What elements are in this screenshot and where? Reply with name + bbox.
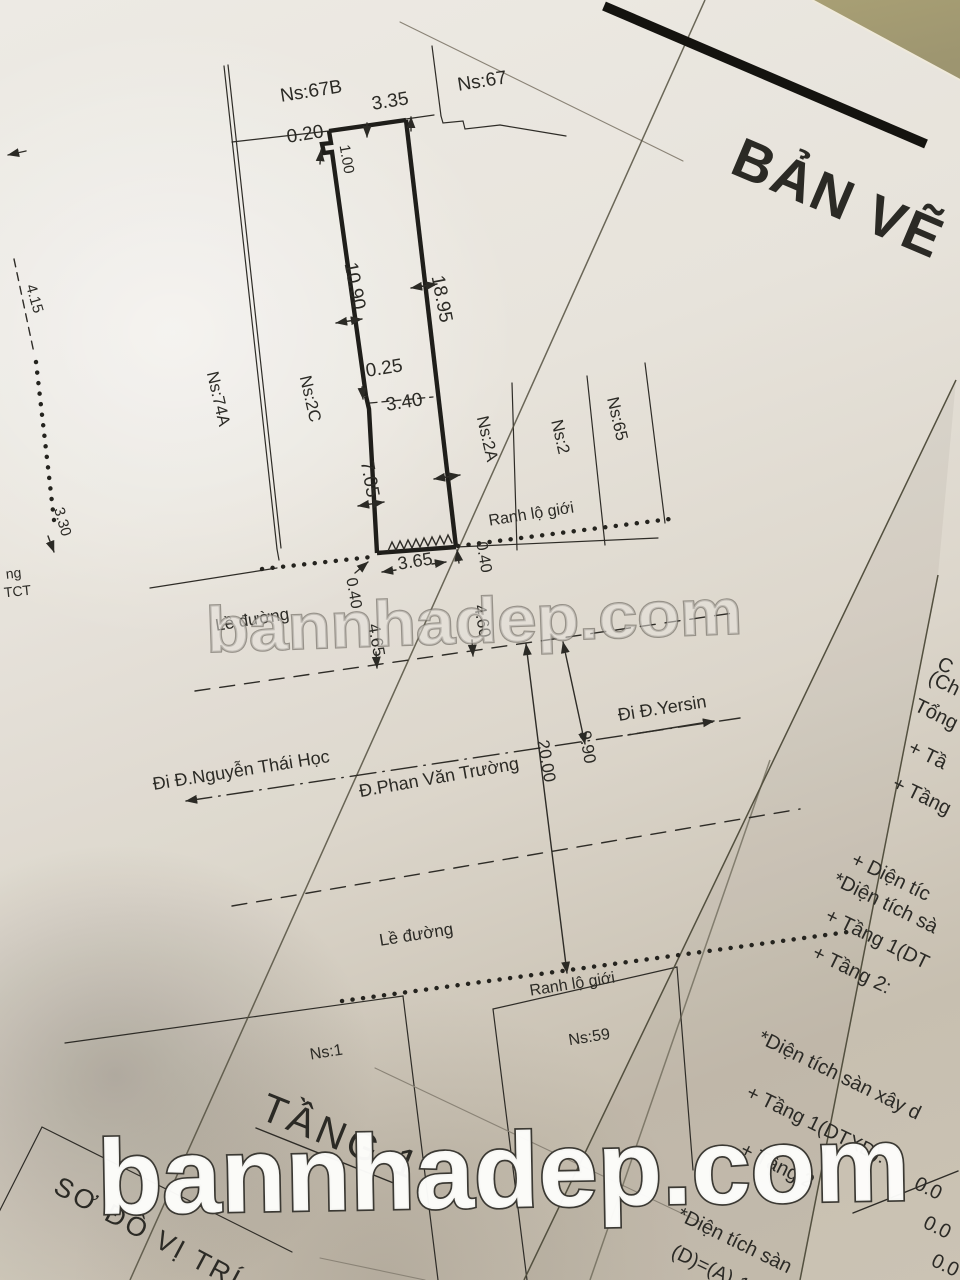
- panel-value: 0.0: [928, 1250, 960, 1280]
- parcel-ns65: Ns:65: [603, 395, 632, 443]
- street-yersin: Đi Đ.Yersin: [616, 691, 707, 725]
- edge-fragment-tct: TCT: [3, 582, 32, 601]
- sheet-title: BẢN VẼ: [723, 125, 953, 270]
- dim-half-width: 9.90: [575, 729, 599, 765]
- panel-line: + Tầng: [889, 773, 955, 820]
- ranh-lo-gioi-upper: Ranh lộ giới: [487, 499, 575, 529]
- photographed-drawing: BẢN VẼ Ns:67B Ns:67 Ns:74A Ns:2C Ns:2A N…: [0, 0, 960, 1280]
- parcel-ns2: Ns:2: [547, 418, 573, 456]
- watermark-bottom: bannhadep.com: [96, 1105, 910, 1237]
- panel-value: 0.0: [920, 1212, 955, 1244]
- panel-line: (Ch: [925, 667, 960, 701]
- panel-line: Tổng: [911, 695, 960, 735]
- edge-fragment-ng: ng: [5, 564, 22, 582]
- parcel-ns59: Ns:59: [567, 1026, 611, 1049]
- panel-line: + Tầ: [905, 737, 952, 775]
- site-plan-svg: BẢN VẼ Ns:67B Ns:67 Ns:74A Ns:2C Ns:2A N…: [0, 0, 960, 1280]
- yersin-direction-arrow: [628, 721, 714, 735]
- le-duong-lower: Lề đường: [378, 919, 455, 949]
- parcel-ns1: Ns:1: [309, 1042, 344, 1064]
- street-phan-van-truong: Đ.Phan Văn Trường: [357, 753, 520, 801]
